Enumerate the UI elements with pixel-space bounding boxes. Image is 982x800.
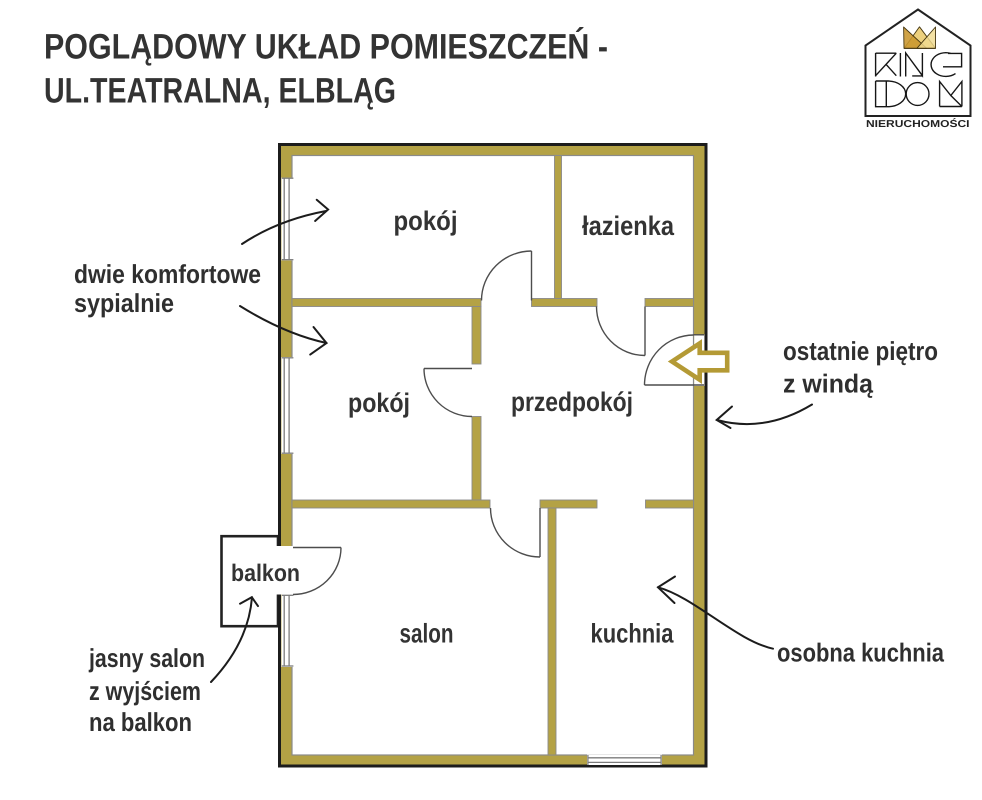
svg-text:UL.TEATRALNA, ELBLĄG: UL.TEATRALNA, ELBLĄG <box>44 71 396 111</box>
svg-text:kuchnia: kuchnia <box>591 619 675 649</box>
svg-text:balkon: balkon <box>231 560 300 587</box>
svg-text:na balkon: na balkon <box>89 707 192 737</box>
svg-text:dwie komfortowe: dwie komfortowe <box>74 259 261 289</box>
svg-text:sypialnie: sypialnie <box>74 288 174 318</box>
svg-text:łazienka: łazienka <box>582 211 675 241</box>
svg-text:pokój: pokój <box>394 206 458 236</box>
svg-text:pokój: pokój <box>348 388 410 418</box>
svg-text:ostatnie piętro: ostatnie piętro <box>783 336 938 366</box>
svg-text:osobna kuchnia: osobna kuchnia <box>777 638 944 668</box>
svg-text:POGLĄDOWY UKŁAD POMIESZCZEŃ -: POGLĄDOWY UKŁAD POMIESZCZEŃ - <box>44 27 608 67</box>
svg-text:przedpokój: przedpokój <box>511 387 633 417</box>
svg-text:z windą: z windą <box>783 369 874 399</box>
svg-text:jasny salon: jasny salon <box>88 643 205 673</box>
svg-text:salon: salon <box>400 619 454 649</box>
svg-text:NIERUCHOMOŚCI: NIERUCHOMOŚCI <box>866 118 970 130</box>
svg-text:z wyjściem: z wyjściem <box>89 676 201 706</box>
